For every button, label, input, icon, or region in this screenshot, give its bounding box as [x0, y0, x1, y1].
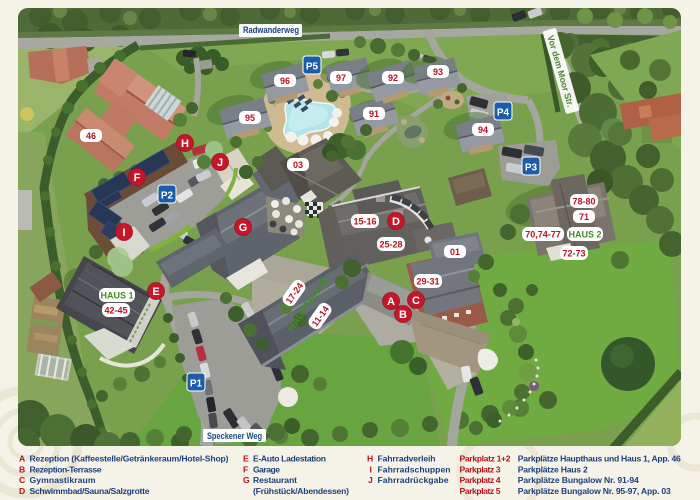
svg-text:Parkplätze Haupthaus und Haus: Parkplätze Haupthaus und Haus 1, App. 46 [518, 454, 681, 464]
svg-text:HAUS 2: HAUS 2 [568, 230, 601, 240]
svg-text:01: 01 [450, 247, 460, 257]
svg-text:03: 03 [293, 160, 303, 170]
svg-text:78-80: 78-80 [572, 197, 595, 207]
svg-text:Fahrradrückgabe: Fahrradrückgabe [378, 475, 449, 485]
svg-text:Rezeption-Terrasse: Rezeption-Terrasse [30, 464, 102, 474]
svg-text:I: I [122, 227, 125, 239]
svg-text:F: F [243, 464, 248, 474]
svg-text:I: I [370, 464, 372, 474]
svg-text:B: B [399, 309, 407, 321]
svg-text:(Frühstück/Abendessen): (Frühstück/Abendessen) [253, 486, 349, 496]
svg-text:P1: P1 [190, 379, 203, 390]
svg-text:Parkplätze Haus 2: Parkplätze Haus 2 [518, 464, 588, 474]
svg-text:D: D [19, 486, 25, 496]
svg-text:46: 46 [86, 131, 96, 141]
svg-text:D: D [392, 216, 400, 228]
svg-text:P2: P2 [161, 191, 174, 202]
svg-text:J: J [368, 475, 373, 485]
svg-text:91: 91 [369, 109, 379, 119]
svg-text:E: E [152, 286, 159, 298]
svg-text:Fahrradverleih: Fahrradverleih [378, 454, 436, 464]
svg-text:15-16: 15-16 [353, 217, 376, 227]
svg-text:P3: P3 [525, 163, 538, 174]
svg-text:92: 92 [388, 73, 398, 83]
svg-text:29-31: 29-31 [416, 277, 439, 287]
svg-text:B: B [19, 464, 25, 474]
svg-text:C: C [412, 295, 420, 307]
svg-text:F: F [134, 172, 141, 184]
svg-text:Gymnastikraum: Gymnastikraum [30, 475, 96, 485]
svg-text:J: J [217, 157, 223, 169]
svg-text:42-45: 42-45 [104, 306, 127, 316]
svg-text:96: 96 [280, 76, 290, 86]
svg-text:H: H [181, 138, 189, 150]
svg-text:A: A [19, 454, 25, 464]
svg-text:93: 93 [433, 67, 443, 77]
svg-text:94: 94 [478, 125, 488, 135]
svg-text:25-28: 25-28 [379, 240, 402, 250]
svg-text:95: 95 [245, 113, 255, 123]
svg-text:Parkplatz 4: Parkplatz 4 [460, 475, 501, 485]
svg-text:HAUS 1: HAUS 1 [100, 291, 133, 301]
svg-text:H: H [367, 454, 373, 464]
svg-text:E-Auto Ladestation: E-Auto Ladestation [253, 454, 326, 464]
svg-text:A: A [387, 296, 395, 308]
svg-text:Parkplatz 3: Parkplatz 3 [460, 464, 501, 474]
svg-text:Restaurant: Restaurant [253, 475, 297, 485]
svg-text:72-73: 72-73 [562, 249, 585, 259]
svg-text:Radwanderweg: Radwanderweg [243, 25, 299, 35]
svg-text:Parkplatz 1+2: Parkplatz 1+2 [460, 454, 511, 464]
svg-text:E: E [243, 454, 249, 464]
svg-text:Schwimmbad/Sauna/Salzgrotte: Schwimmbad/Sauna/Salzgrotte [30, 486, 150, 496]
svg-text:70,74-77: 70,74-77 [525, 230, 561, 240]
svg-text:Parkplätze Bungalow Nr. 95-97,: Parkplätze Bungalow Nr. 95-97, App. 03 [518, 486, 671, 496]
svg-text:Parkplatz 5: Parkplatz 5 [460, 486, 501, 496]
svg-text:Rezeption (Kaffeestelle/Geträn: Rezeption (Kaffeestelle/Getränkeraum/Hot… [30, 454, 229, 464]
svg-text:Fahrradschuppen: Fahrradschuppen [378, 464, 451, 474]
svg-text:P4: P4 [497, 108, 510, 119]
svg-text:71: 71 [579, 212, 589, 222]
svg-text:C: C [19, 475, 25, 485]
svg-text:97: 97 [336, 73, 346, 83]
svg-text:Parkplätze Bungalow Nr. 91-94: Parkplätze Bungalow Nr. 91-94 [518, 475, 639, 485]
svg-text:G: G [243, 475, 250, 485]
svg-text:G: G [239, 222, 248, 234]
svg-text:Garage: Garage [253, 464, 280, 474]
svg-text:Speckener Weg: Speckener Weg [207, 431, 262, 441]
svg-text:P5: P5 [306, 62, 319, 73]
